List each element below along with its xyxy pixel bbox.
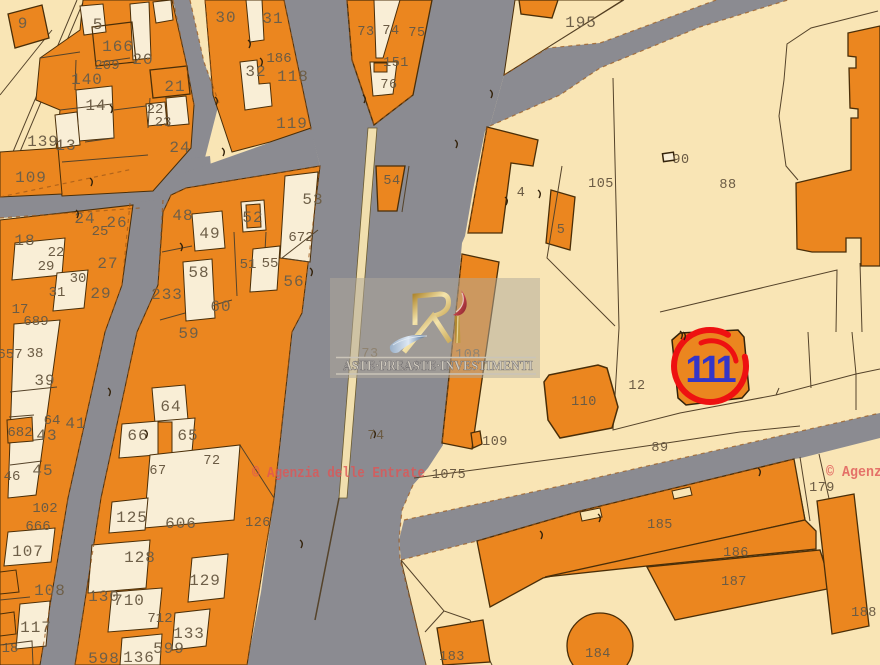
svg-text:712: 712 xyxy=(147,611,172,627)
svg-text:58: 58 xyxy=(188,264,209,282)
svg-text:166: 166 xyxy=(102,38,134,56)
svg-text:107: 107 xyxy=(12,543,44,561)
svg-text:90: 90 xyxy=(672,153,689,168)
svg-text:109: 109 xyxy=(15,169,47,187)
svg-text:184: 184 xyxy=(585,647,611,662)
svg-text:29: 29 xyxy=(38,259,55,275)
svg-text:599: 599 xyxy=(153,640,185,658)
svg-text:5: 5 xyxy=(557,223,566,238)
svg-text:31: 31 xyxy=(262,10,283,28)
svg-text:21: 21 xyxy=(164,78,185,96)
svg-text:88: 88 xyxy=(719,178,736,193)
svg-text:ASTE·PREASTE·INVESTIMENTI: ASTE·PREASTE·INVESTIMENTI xyxy=(343,358,533,373)
svg-text:32: 32 xyxy=(245,63,266,81)
svg-text:© Agenzia delle Entrate: © Agenzia delle Entrate xyxy=(252,465,425,482)
svg-text:67: 67 xyxy=(149,464,166,479)
svg-text:128: 128 xyxy=(124,549,156,567)
svg-text:74: 74 xyxy=(367,429,384,444)
svg-text:682: 682 xyxy=(7,425,32,441)
svg-text:52: 52 xyxy=(242,209,263,227)
svg-text:109: 109 xyxy=(482,435,508,450)
svg-text:20: 20 xyxy=(132,51,153,69)
svg-text:75: 75 xyxy=(408,26,425,41)
svg-text:76: 76 xyxy=(380,78,397,93)
svg-text:195: 195 xyxy=(565,14,597,32)
svg-text:209: 209 xyxy=(94,58,119,74)
svg-text:46: 46 xyxy=(4,469,21,485)
svg-text:49: 49 xyxy=(199,225,220,243)
svg-text:136: 136 xyxy=(123,649,155,665)
svg-text:65: 65 xyxy=(177,427,198,445)
svg-text:14: 14 xyxy=(85,97,106,115)
svg-text:48: 48 xyxy=(172,207,193,225)
svg-text:598: 598 xyxy=(88,650,120,665)
svg-text:73: 73 xyxy=(357,25,374,40)
svg-text:12: 12 xyxy=(628,379,645,394)
svg-text:24: 24 xyxy=(169,139,190,157)
svg-text:38: 38 xyxy=(27,346,44,362)
svg-text:125: 125 xyxy=(116,509,148,527)
svg-text:39: 39 xyxy=(34,372,55,390)
svg-text:126: 126 xyxy=(245,516,271,531)
svg-text:27: 27 xyxy=(97,255,118,273)
svg-text:30: 30 xyxy=(70,271,87,287)
svg-text:53: 53 xyxy=(302,191,323,209)
svg-text:64: 64 xyxy=(160,398,181,416)
svg-text:4: 4 xyxy=(517,186,526,201)
svg-text:© Agenz: © Agenz xyxy=(826,464,880,481)
svg-text:105: 105 xyxy=(588,177,614,192)
svg-text:9: 9 xyxy=(18,15,29,33)
svg-text:26: 26 xyxy=(106,214,127,232)
svg-text:51: 51 xyxy=(240,257,257,273)
svg-text:118: 118 xyxy=(277,68,309,86)
svg-text:186: 186 xyxy=(266,51,291,67)
svg-text:18: 18 xyxy=(14,232,35,250)
svg-text:56: 56 xyxy=(283,273,304,291)
svg-text:119: 119 xyxy=(276,115,308,133)
svg-text:110: 110 xyxy=(571,395,597,410)
svg-text:129: 129 xyxy=(189,572,221,590)
svg-text:111: 111 xyxy=(685,349,736,391)
svg-text:102: 102 xyxy=(32,501,57,517)
svg-text:23: 23 xyxy=(155,115,172,131)
svg-text:74: 74 xyxy=(382,24,399,39)
svg-text:1075: 1075 xyxy=(432,468,466,483)
svg-text:689: 689 xyxy=(23,314,48,330)
svg-text:30: 30 xyxy=(215,9,236,27)
svg-text:31: 31 xyxy=(49,285,66,301)
svg-text:188: 188 xyxy=(851,606,877,621)
svg-text:185: 185 xyxy=(647,518,673,533)
svg-text:59: 59 xyxy=(178,325,199,343)
svg-text:54: 54 xyxy=(383,174,400,189)
svg-text:187: 187 xyxy=(721,575,747,590)
svg-text:139: 139 xyxy=(27,133,59,151)
svg-text:710: 710 xyxy=(113,592,145,610)
svg-text:657: 657 xyxy=(0,347,23,363)
svg-text:666: 666 xyxy=(25,519,50,535)
svg-text:72: 72 xyxy=(203,454,220,469)
svg-text:183: 183 xyxy=(439,650,465,665)
svg-text:179: 179 xyxy=(809,481,835,496)
svg-text:60: 60 xyxy=(210,298,231,316)
svg-text:606: 606 xyxy=(165,515,197,533)
svg-text:29: 29 xyxy=(90,285,111,303)
svg-text:55: 55 xyxy=(262,256,279,272)
svg-text:108: 108 xyxy=(34,582,66,600)
svg-text:89: 89 xyxy=(651,441,668,456)
svg-text:43: 43 xyxy=(36,427,57,445)
svg-text:151: 151 xyxy=(383,56,409,71)
svg-text:672: 672 xyxy=(288,230,313,246)
svg-text:5: 5 xyxy=(93,16,104,34)
svg-text:45: 45 xyxy=(32,462,53,480)
